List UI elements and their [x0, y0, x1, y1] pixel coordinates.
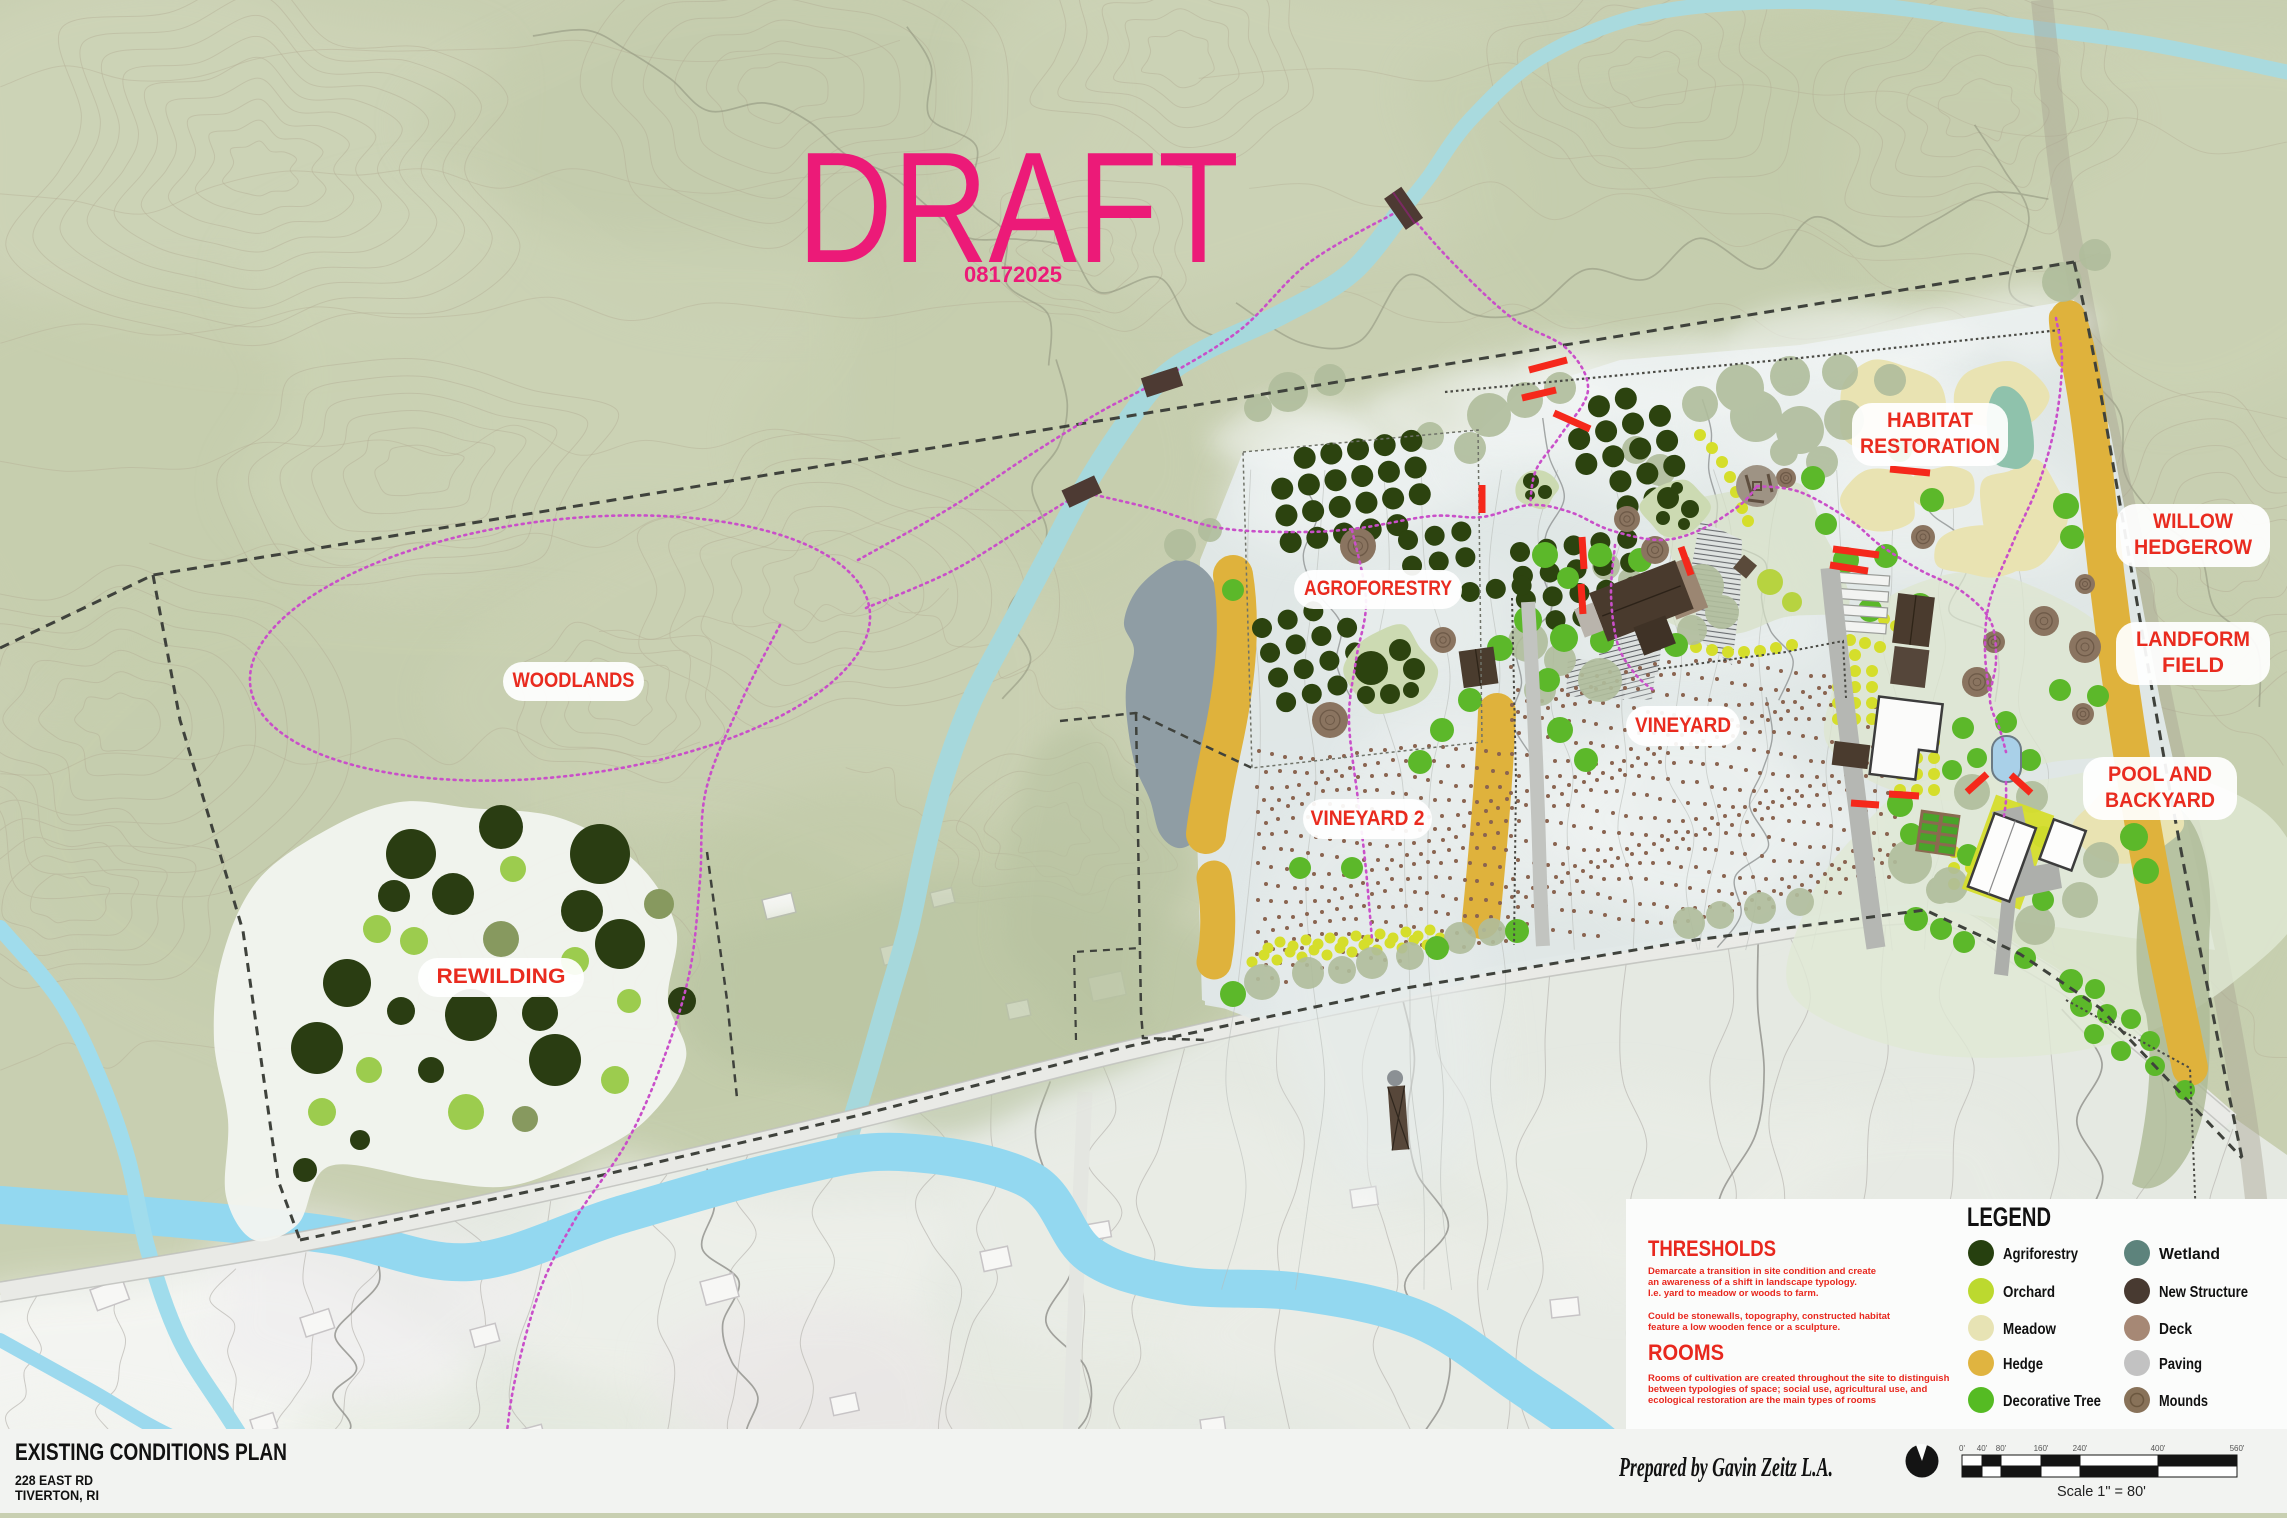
- svg-text:Mounds: Mounds: [2159, 1393, 2208, 1410]
- svg-text:240': 240': [2073, 1444, 2088, 1453]
- svg-text:Deck: Deck: [2159, 1321, 2192, 1338]
- svg-text:feature a low wooden fence or: feature a low wooden fence or a sculptur…: [1648, 1322, 1840, 1333]
- svg-text:TIVERTON, RI: TIVERTON, RI: [15, 1488, 99, 1503]
- svg-text:80': 80': [1996, 1444, 2007, 1453]
- svg-text:New Structure: New Structure: [2159, 1284, 2248, 1301]
- svg-text:an awareness of a shift in lan: an awareness of a shift in landscape typ…: [1648, 1277, 1857, 1288]
- svg-text:WILLOW: WILLOW: [2153, 509, 2234, 533]
- svg-text:LEGEND: LEGEND: [1967, 1202, 2051, 1232]
- svg-text:Prepared by Gavin Zeitz L.A.: Prepared by Gavin Zeitz L.A.: [1618, 1452, 1833, 1482]
- svg-text:EXISTING CONDITIONS PLAN: EXISTING CONDITIONS PLAN: [15, 1439, 287, 1466]
- svg-text:THRESHOLDS: THRESHOLDS: [1648, 1236, 1776, 1261]
- svg-text:POOL AND: POOL AND: [2108, 762, 2212, 786]
- svg-text:REWILDING: REWILDING: [437, 964, 566, 988]
- svg-text:ROOMS: ROOMS: [1648, 1340, 1724, 1365]
- svg-text:RESTORATION: RESTORATION: [1860, 434, 2000, 458]
- svg-text:HEDGEROW: HEDGEROW: [2134, 535, 2253, 559]
- svg-text:Scale 1" = 80': Scale 1" = 80': [2057, 1484, 2146, 1500]
- svg-text:FIELD: FIELD: [2162, 653, 2224, 677]
- svg-text:40': 40': [1977, 1444, 1988, 1453]
- svg-text:Agriforestry: Agriforestry: [2003, 1246, 2078, 1263]
- svg-text:400': 400': [2151, 1444, 2166, 1453]
- svg-text:Paving: Paving: [2159, 1356, 2202, 1373]
- svg-text:I.e. yard to meadow or woods t: I.e. yard to meadow or woods to farm.: [1648, 1288, 1819, 1299]
- svg-text:LANDFORM: LANDFORM: [2136, 627, 2250, 651]
- svg-text:Wetland: Wetland: [2159, 1246, 2220, 1263]
- svg-text:VINEYARD 2: VINEYARD 2: [1311, 806, 1425, 830]
- svg-text:Meadow: Meadow: [2003, 1321, 2056, 1338]
- svg-text:Decorative Tree: Decorative Tree: [2003, 1393, 2101, 1410]
- svg-text:08172025: 08172025: [964, 262, 1062, 287]
- svg-text:BACKYARD: BACKYARD: [2105, 788, 2215, 812]
- svg-text:WOODLANDS: WOODLANDS: [513, 668, 635, 692]
- svg-text:560': 560': [2230, 1444, 2245, 1453]
- svg-text:VINEYARD: VINEYARD: [1635, 713, 1731, 737]
- svg-text:Rooms of cultivation are creat: Rooms of cultivation are created through…: [1648, 1373, 1950, 1384]
- svg-text:Could be stonewalls, topograph: Could be stonewalls, topography, constru…: [1648, 1311, 1891, 1322]
- svg-text:Orchard: Orchard: [2003, 1284, 2055, 1301]
- svg-text:Hedge: Hedge: [2003, 1356, 2043, 1373]
- svg-text:160': 160': [2034, 1444, 2049, 1453]
- svg-text:HABITAT: HABITAT: [1887, 408, 1973, 432]
- svg-text:between typologies of space; s: between typologies of space; social use,…: [1648, 1384, 1927, 1395]
- svg-text:AGROFORESTRY: AGROFORESTRY: [1304, 576, 1452, 600]
- svg-text:228 EAST RD: 228 EAST RD: [15, 1473, 93, 1488]
- svg-text:Demarcate a transition in site: Demarcate a transition in site condition…: [1648, 1266, 1876, 1277]
- svg-text:ecological restoration are the: ecological restoration are the main type…: [1648, 1395, 1876, 1406]
- svg-text:0': 0': [1959, 1444, 1965, 1453]
